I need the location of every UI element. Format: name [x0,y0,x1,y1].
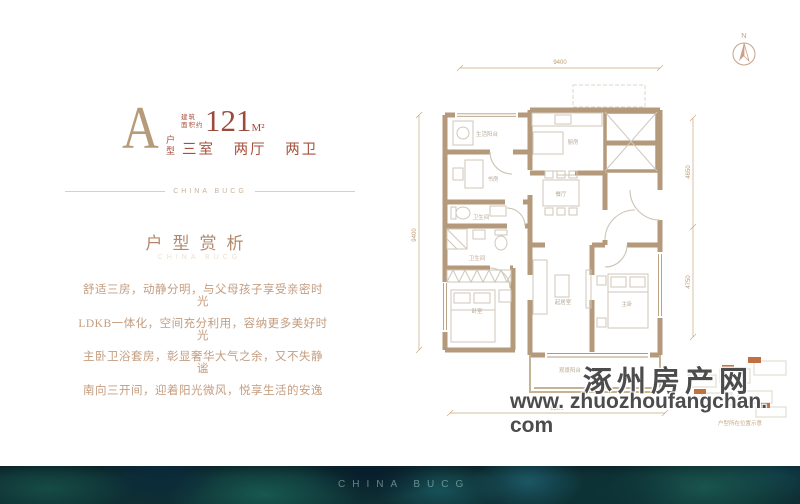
dim-right-lower: 4750 [686,275,692,289]
compass-icon: N [733,31,755,65]
watermark-site-url: www. zhuozhoufangchan. com [510,390,800,438]
layout-summary: 三室 两厅 两卫 [182,138,331,159]
area-prefix-line1: 建筑 [181,114,204,122]
floorplan-poster-page: A 户型 建筑 面积约 121M² 三室 两厅 两卫 CHINA BUCG 户型… [0,0,800,504]
compass-north-label: N [741,31,746,40]
analysis-title: 户型赏析 [92,229,307,254]
analysis-line: 舒适三房，动静分明，与父母孩子享受亲密时光 [78,284,328,308]
area-number: 121 [205,103,252,138]
area-unit: M² [252,122,265,134]
divider-brand-text: CHINA BUCG [165,188,255,195]
plan-type-label: 户型 [164,135,177,157]
room-label-master: 主卧 [621,300,633,308]
area-value: 121M² [205,105,265,136]
analysis-ghost-brand: CHINA BUCG [92,254,307,261]
footer-band: CHINA BUCG [0,466,800,504]
area-prefix-line2: 面积约 [181,122,204,130]
analysis-line: LDKB一体化，空间充分利用，容纳更多美好时光 [78,318,328,342]
room-label-dining: 餐厅 [555,190,567,198]
dim-right-upper: 4650 [686,165,692,179]
room-label-bath-2: 卫生间 [469,254,486,262]
footer-brand-text: CHINA BUCG [338,479,470,490]
room-label-living: 起居室 [555,298,572,306]
analysis-paragraph: 舒适三房，动静分明，与父母孩子享受亲密时光 LDKB一体化，空间充分利用，容纳更… [78,284,328,406]
walls [445,110,660,355]
room-label-kitchen: 厨房 [567,138,579,146]
room-label-bath-1: 卫生间 [473,213,490,221]
dim-top: 9400 [553,60,567,66]
header-divider: CHINA BUCG [65,188,355,195]
analysis-line: 南向三开间，迎着阳光微风，悦享生活的安逸 [78,385,328,397]
layout-baths: 两卫 [285,142,318,158]
plan-letter: A [122,98,159,158]
dim-left: 9400 [412,228,418,242]
room-label-service-balcony: 生活阳台 [476,130,499,138]
area-prefix: 建筑 面积约 [181,114,204,129]
room-label-view-balcony: 观景阳台 [559,366,582,374]
room-label-bedroom: 卧室 [471,307,483,315]
divider-line-right [255,191,355,192]
analysis-line: 主卧卫浴套房，彰显奢华大气之余，又不失静谧 [78,351,328,375]
room-label-study: 书房 [487,175,499,183]
ac-platform [573,85,645,107]
layout-rooms: 三室 [182,142,215,158]
layout-halls: 两厅 [234,142,267,158]
windows [442,113,663,359]
divider-line-left [65,191,165,192]
